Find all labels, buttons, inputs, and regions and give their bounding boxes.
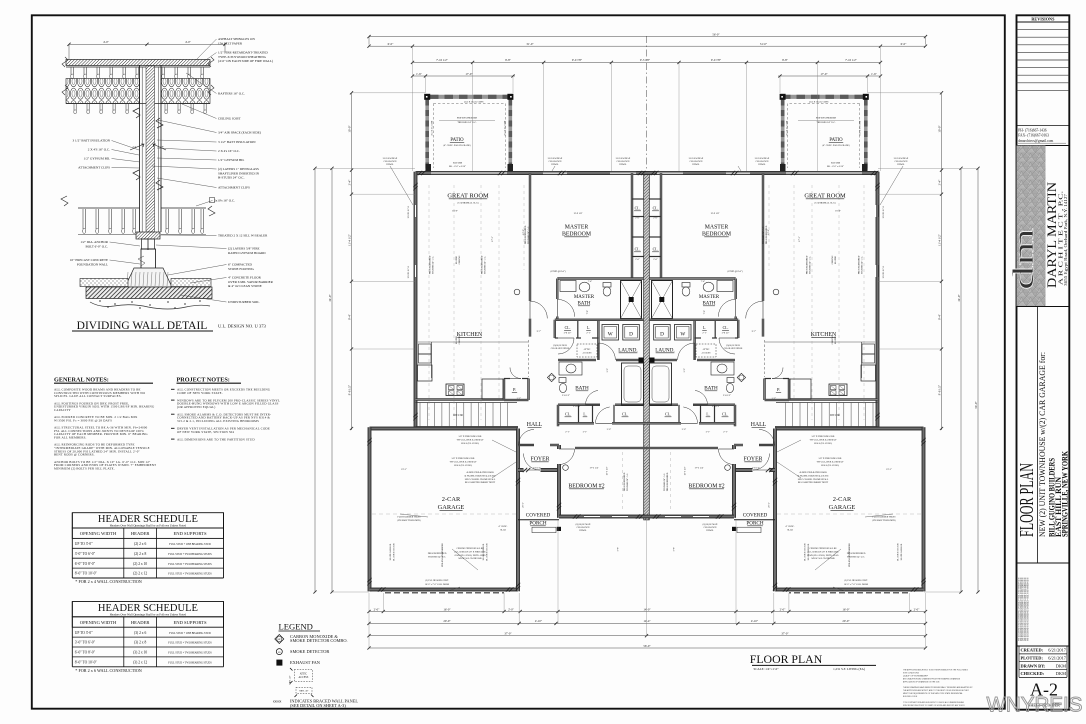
svg-text:W/3500 PSI. Fc = 3000 PSI @ 28: W/3500 PSI. Fc = 3000 PSI @ 28 DAYS (54, 418, 112, 422)
svg-text:(STUD @ 8'-0"): (STUD @ 8'-0") (727, 270, 742, 273)
svg-text:(4'-0" ON EACH SIDE OF FIRE WA: (4'-0" ON EACH SIDE OF FIRE WALL) (218, 59, 273, 63)
svg-text:2'-0": 2'-0" (374, 607, 381, 611)
svg-text:3/0 3/0 W/MAX: 3/0 3/0 W/MAX (894, 157, 909, 160)
svg-text:SLOPE GARAGE: SLOPE GARAGE (900, 543, 903, 560)
svg-text:END SUPPORTS: END SUPPORTS (173, 620, 206, 625)
svg-text:CL.: CL. (635, 248, 641, 252)
svg-text:CREATED:: CREATED: (1021, 648, 1044, 653)
svg-text:DARYL MARTIN: DARYL MARTIN (1044, 181, 1059, 288)
svg-text:(CATHEDRAL CLG): (CATHEDRAL CLG) (457, 202, 478, 205)
svg-text:PRE-ENGINEERED: PRE-ENGINEERED (766, 225, 768, 244)
svg-text:(1) LAYER OF 5/8" X FIRECODE: (1) LAYER OF 5/8" X FIRECODE (454, 550, 486, 553)
svg-text:CODE OF NEW YORK STATE.: CODE OF NEW YORK STATE. (177, 391, 223, 395)
svg-text:FAX- (716)667-0163: FAX- (716)667-0163 (1018, 134, 1049, 138)
svg-text:PRE-ENGINEERED: PRE-ENGINEERED (807, 255, 809, 274)
svg-text:TRUSSES 24" O.C.: TRUSSES 24" O.C. (810, 256, 812, 274)
svg-text:PLOTTED:: PLOTTED: (1021, 656, 1044, 661)
svg-text:HDWR.: HDWR. (551, 164, 559, 166)
svg-text:U.L. DESIGN NO. U 373: U.L. DESIGN NO. U 373 (218, 324, 267, 329)
svg-text:MC: MC (278, 639, 282, 641)
svg-text:FULL STUD + TWO BEARING STUDS: FULL STUD + TWO BEARING STUDS (168, 652, 212, 655)
svg-text:1'-6": 1'-6" (871, 72, 878, 76)
svg-text:L.: L. (587, 326, 590, 330)
svg-text:PRE-ENGINEERED: PRE-ENGINEERED (847, 553, 866, 555)
svg-text:UNDISTURBED SOIL: UNDISTURBED SOIL (228, 300, 259, 304)
svg-text:3/0 3/0 W/MAX: 3/0 3/0 W/MAX (383, 157, 398, 160)
svg-text:BOLT 6'-0" O.C.: BOLT 6'-0" O.C. (86, 244, 109, 248)
svg-text:2'-1": 2'-1" (702, 333, 706, 335)
svg-text:(3) 2 X 10s CONT: (3) 2 X 10s CONT (430, 120, 433, 136)
svg-text:12'-9 1/2": 12'-9 1/2" (607, 466, 609, 475)
svg-text:FLOOR TO DOOR: FLOOR TO DOOR (394, 543, 396, 561)
svg-text:FOUNDATION WALL: FOUNDATION WALL (77, 262, 108, 266)
svg-text:8'-0" TO 10'-0": 8'-0" TO 10'-0" (75, 572, 98, 576)
svg-text:D: D (629, 332, 633, 338)
svg-text:9'-8": 9'-8" (674, 547, 676, 551)
svg-text:ANY UNAUTHORIZED CHANGES FROM: ANY UNAUTHORIZED CHANGES FROM THE STAMPE… (903, 677, 961, 680)
svg-text:(3) 2 x 8: (3) 2 x 8 (134, 641, 146, 645)
svg-text:WRAP ALL CLGBEAMS: WRAP ALL CLGBEAMS (458, 557, 482, 560)
svg-text:BE GASKETED SMOKE TIGHT: BE GASKETED SMOKE TIGHT (465, 481, 496, 484)
svg-text:(2) 2 x 8: (2) 2 x 8 (134, 552, 146, 556)
svg-text:CLEARANCE: CLEARANCE (703, 526, 717, 529)
svg-text:MASTER: MASTER (699, 295, 720, 300)
svg-text:FLOOR TO DOOR: FLOOR TO DOOR (898, 543, 900, 561)
svg-text:WALL (UL # U305): WALL (UL # U305) (461, 442, 479, 445)
svg-text:TRUSSES 24" O.C.: TRUSSES 24" O.C. (433, 256, 435, 274)
svg-text:5/8" X FIRECODE GWB: 5/8" X FIRECODE GWB (459, 436, 482, 438)
svg-text:(CATHEDRAL CLG): (CATHEDRAL CLG) (814, 202, 835, 205)
svg-text:17'-0": 17'-0" (820, 72, 828, 76)
svg-text:19'-2": 19'-2" (886, 469, 892, 471)
svg-text:FLUSH GIRDER TRUSS: FLUSH GIRDER TRUSS (873, 517, 897, 519)
svg-text:FULL STUD + TWO BEARING STUDS: FULL STUD + TWO BEARING STUDS (168, 573, 212, 576)
svg-text:3/0 DBL HUNG: 3/0 DBL HUNG (408, 205, 410, 218)
svg-text:CL.: CL. (723, 326, 729, 330)
svg-text:DN 13R: DN 13R (830, 414, 840, 417)
svg-text:3 1/2" BATT INSULATION: 3 1/2" BATT INSULATION (73, 139, 111, 143)
svg-text:SLOPE GARAGE: SLOPE GARAGE (389, 543, 392, 560)
svg-text:GARAGE: GARAGE (438, 504, 465, 511)
svg-text:CLEARANCE: CLEARANCE (616, 160, 630, 163)
svg-text:SITE CONDITIONS: SITE CONDITIONS (903, 672, 920, 674)
svg-text:(4" CONC. PAD ON GRADE): (4" CONC. PAD ON GRADE) (822, 144, 849, 147)
svg-text:SPECIFICATIONS PRIOR TO START: SPECIFICATIONS PRIOR TO START OF WORK AN… (903, 704, 965, 707)
svg-text:OPENING WIDTH: OPENING WIDTH (80, 620, 117, 625)
svg-text:20'-0": 20'-0" (443, 619, 451, 623)
svg-text:CL.: CL. (635, 207, 641, 211)
svg-text:* FOR 2 x 4 WALL CONSTRUCTION: * FOR 2 x 4 WALL CONSTRUCTION (75, 579, 142, 584)
svg-text:REVISIONS: REVISIONS (1031, 16, 1055, 21)
svg-text:THESE DRAWINGS HAVE BEEN PROFE: THESE DRAWINGS HAVE BEEN PROFESSIONALLY … (903, 686, 973, 689)
svg-text:11'-4 1/2": 11'-4 1/2" (937, 233, 941, 246)
svg-text:TRUSSES 24" O.C.: TRUSSES 24" O.C. (847, 557, 865, 559)
svg-text:FLOOR TO DOOR: FLOOR TO DOOR (487, 543, 489, 561)
svg-text:9'-7": 9'-7" (752, 331, 756, 333)
svg-text:TYP (1) LAYER EA SIDE OF: TYP (1) LAYER EA SIDE OF (457, 438, 485, 441)
svg-text:17'-3": 17'-3" (799, 236, 801, 242)
svg-text:HDWR.: HDWR. (692, 164, 700, 166)
svg-text:5/8" X FIRECODE GWB: 5/8" X FIRECODE GWB (819, 458, 842, 460)
svg-text:2-CAR: 2-CAR (833, 496, 852, 503)
svg-text:ACCESS: ACCESS (701, 352, 711, 355)
svg-text:GREAT ROOM: GREAT ROOM (447, 193, 489, 200)
svg-text:(2) LVL HEADER CONT.: (2) LVL HEADER CONT. (844, 579, 868, 582)
svg-text:3'-0" TO 6'-0": 3'-0" TO 6'-0" (75, 641, 96, 645)
svg-text:(3) 2 X 10s (1) CONT.: (3) 2 X 10s (1) CONT. (464, 101, 484, 104)
svg-text:(2)(10) W/ MAX: (2)(10) W/ MAX (553, 344, 567, 347)
svg-text:16'-0" x 7'-0" GAR. DOOR: 16'-0" x 7'-0" GAR. DOOR (425, 583, 450, 586)
svg-text:BE GASKETED SMOKE TIGHT: BE GASKETED SMOKE TIGHT (798, 481, 829, 484)
svg-text:2'-8 1/2": 2'-8 1/2" (722, 333, 730, 335)
svg-text:W: W (680, 332, 685, 338)
svg-text:SPLICES. GLUE ALL CONTACT SURF: SPLICES. GLUE ALL CONTACT SURFACES. (54, 394, 122, 398)
svg-text:21'-2": 21'-2" (523, 502, 525, 508)
svg-text:1/2" GYPSUM BD.: 1/2" GYPSUM BD. (218, 158, 245, 162)
svg-text:SD: SD (278, 652, 281, 654)
svg-text:4'-10": 4'-10" (751, 619, 759, 623)
svg-text:SLOPED: SLOPED (456, 335, 458, 344)
svg-text:MASTER: MASTER (705, 225, 729, 231)
svg-text:EXHAUST FAN: EXHAUST FAN (290, 660, 321, 665)
svg-text:(2)(10) W/ MAX: (2)(10) W/ MAX (726, 344, 740, 347)
svg-text:FLUSH GIRDER TRUSS: FLUSH GIRDER TRUSS (398, 517, 422, 519)
svg-text:TRUSSES 24" O.C.: TRUSSES 24" O.C. (528, 226, 530, 244)
svg-text:2'-4 1/2": 2'-4 1/2" (573, 406, 581, 408)
svg-text:TYP (1) LAYER EA SIDE OF: TYP (1) LAYER EA SIDE OF (810, 438, 838, 441)
svg-text:CEILING: CEILING (832, 335, 834, 344)
svg-text:P.: P. (777, 387, 780, 392)
svg-text:GWB (UL # U305). NOTE: ALSO: GWB (UL # U305). NOTE: ALSO (808, 554, 839, 557)
svg-text:QUALITY OF WORKMANSHIP: QUALITY OF WORKMANSHIP (903, 674, 929, 677)
svg-text:9'-8": 9'-8" (505, 58, 512, 62)
svg-text:6'-0": 6'-0" (388, 42, 395, 46)
svg-text:RAFTERS 16" O.C.: RAFTERS 16" O.C. (218, 92, 245, 96)
svg-text:OPENING WIDTH: OPENING WIDTH (80, 531, 117, 536)
svg-text:WALL (UL # U305): WALL (UL # U305) (821, 464, 839, 467)
svg-text:Headers Over Wall Openings Sha: Headers Over Wall Openings Shall be as F… (110, 524, 187, 528)
svg-text:34'-0": 34'-0" (957, 294, 961, 302)
svg-text:& FRAME. DOOR SHALL HAVE: & FRAME. DOOR SHALL HAVE (465, 474, 497, 477)
svg-text:GARAGE: GARAGE (829, 504, 856, 511)
svg-text:9'-4": 9'-4" (937, 313, 941, 320)
svg-text:12'-9 1/2": 12'-9 1/2" (685, 466, 687, 475)
svg-text:CL.: CL. (622, 413, 628, 417)
svg-text:SLAB: SLAB (500, 529, 506, 532)
svg-text:WALL (UL # U305): WALL (UL # U305) (454, 464, 472, 467)
svg-text:SELF-CLOSER. FRAME SHALL: SELF-CLOSER. FRAME SHALL (465, 478, 496, 481)
svg-text:GWB (UL # U305). NOTE: ALSO: GWB (UL # U305). NOTE: ALSO (455, 554, 486, 557)
svg-text:END SUPPORTS: END SUPPORTS (173, 531, 206, 536)
svg-text:(3) 2 x 12: (3) 2 x 12 (133, 661, 147, 665)
svg-text:SLAB: SLAB (787, 529, 793, 532)
svg-text:9'-8": 9'-8" (782, 58, 789, 62)
svg-text:PRE-ENGINEERED: PRE-ENGINEERED (667, 472, 669, 491)
svg-text:3'-4": 3'-4" (937, 179, 941, 186)
svg-text:SGD 6068: SGD 6068 (453, 162, 463, 164)
svg-text:L.: L. (583, 413, 586, 417)
svg-text:ALL DIMENSIONS ARE TO THE PART: ALL DIMENSIONS ARE TO THE PARTITION STUD (177, 437, 255, 441)
svg-text:UP TO 3'-0": UP TO 3'-0" (75, 631, 93, 635)
svg-text:3/0 3/0 W/MAX: 3/0 3/0 W/MAX (548, 157, 563, 160)
svg-text:TRUSSES 24" O.C.: TRUSSES 24" O.C. (485, 256, 487, 274)
svg-text:NEW (2) UNIT TOWNHOUSE w/(2) C: NEW (2) UNIT TOWNHOUSE w/(2) CAR GARAGE … (1037, 352, 1047, 537)
svg-text:(1) LAYER OF 5/8" X FIRECODE: (1) LAYER OF 5/8" X FIRECODE (807, 550, 839, 553)
svg-text:31'-0": 31'-0" (760, 42, 768, 46)
svg-text:4'-0": 4'-0" (103, 40, 110, 44)
svg-text:FULL STUD + ONE BEARING STUD: FULL STUD + ONE BEARING STUD (169, 543, 211, 546)
svg-text:37'-0": 37'-0" (504, 632, 512, 636)
svg-text:dm: dm (1007, 228, 1040, 290)
svg-text:RATED GYPSUM BOARD: RATED GYPSUM BOARD (228, 251, 266, 255)
svg-text:7'-10 1/2": 7'-10 1/2" (845, 58, 858, 62)
svg-text:(2) 2 x 6: (2) 2 x 6 (134, 542, 146, 546)
svg-text:MASTER: MASTER (574, 295, 595, 300)
svg-text:HDWR.: HDWR. (579, 530, 587, 532)
svg-text:TYP (1) LAYER EA SIDE OF: TYP (1) LAYER EA SIDE OF (817, 460, 845, 463)
svg-text:CEILING: CEILING (459, 335, 461, 344)
svg-text:16'-8": 16'-8" (452, 211, 458, 213)
svg-text:FLOOR TO DOOR: FLOOR TO DOOR (805, 543, 807, 561)
svg-text:3 1/2" BATT INSULATION: 3 1/2" BATT INSULATION (218, 140, 256, 144)
svg-text:2'-0": 2'-0" (635, 218, 639, 220)
svg-text:2'-4 1/2": 2'-4 1/2" (712, 406, 720, 408)
svg-text:FULL STUD + TWO BEARING STUDS: FULL STUD + TWO BEARING STUDS (168, 563, 212, 566)
svg-text:FULL STUD + TWO BEARING STUDS: FULL STUD + TWO BEARING STUDS (168, 553, 212, 556)
svg-text:UP TO 3'-0": UP TO 3'-0" (75, 542, 93, 546)
svg-text:CLEARANCE: CLEARANCE (548, 160, 562, 163)
svg-text:21'-2": 21'-2" (769, 502, 771, 508)
svg-text:& 4" #2 CLEAN STONE: & 4" #2 CLEAN STONE (228, 284, 262, 288)
svg-text:CEILING FINISH SHALL BE: CEILING FINISH SHALL BE (456, 547, 484, 550)
svg-text:(3) 2 X 10s CONT: (3) 2 X 10s CONT (785, 120, 788, 136)
svg-text:9'-0": 9'-0" (607, 368, 609, 372)
svg-text:MEET THE REQUIREMENTS OF THE N: MEET THE REQUIREMENTS OF THE NEW YORK ST… (903, 692, 963, 695)
svg-text:2 X 4'S 16" O.C.: 2 X 4'S 16" O.C. (88, 148, 110, 152)
svg-text:THE APPROVING ARCHITECT IS NOT: THE APPROVING ARCHITECT IS NOT RESPONSIB… (903, 669, 969, 672)
svg-text:9'-0 7/8": 9'-0 7/8" (711, 58, 722, 62)
svg-text:ATTIC: ATTIC (584, 348, 591, 351)
svg-text:HDWR.: HDWR. (758, 164, 766, 166)
svg-text:3/4" AIR SPACE (EACH SIDE): 3/4" AIR SPACE (EACH SIDE) (218, 131, 261, 135)
svg-text:45 MIN. FIRE-RATED DOOR: 45 MIN. FIRE-RATED DOOR (799, 471, 827, 474)
svg-text:(3) 2 x 6: (3) 2 x 6 (134, 631, 146, 635)
svg-text:SELF-CLOSER. FRAME SHALL: SELF-CLOSER. FRAME SHALL (798, 478, 829, 481)
svg-text:7'-4": 7'-4" (701, 281, 705, 283)
svg-text:ATTACHMENT CLIPS: ATTACHMENT CLIPS (218, 186, 250, 190)
svg-text:9'-4": 9'-4" (347, 313, 351, 320)
svg-text:D: D (660, 332, 664, 338)
svg-text:THE APPROVING ARCHITECT, AND T: THE APPROVING ARCHITECT, AND TO THE BEST… (903, 689, 970, 692)
svg-text:4" CONC.: 4" CONC. (785, 526, 795, 528)
svg-text:HEADER: HEADER (131, 620, 151, 625)
svg-text:CL.: CL. (565, 326, 571, 330)
svg-text:SPRINGVILLE, NEW YORK: SPRINGVILLE, NEW YORK (1060, 451, 1070, 537)
svg-text:TRUSSES 24" O.C.: TRUSSES 24" O.C. (816, 121, 836, 124)
svg-text:1/2" GYPSUM BD.: 1/2" GYPSUM BD. (84, 157, 111, 161)
svg-text:PRE-ENGINEERED: PRE-ENGINEERED (525, 225, 527, 244)
svg-text:2'-0": 2'-0" (635, 259, 639, 261)
svg-text:H-STUDS 24" O.C.: H-STUDS 24" O.C. (218, 176, 245, 180)
svg-text:dmarchtecs@gmail.com: dmarchtecs@gmail.com (1018, 139, 1053, 143)
svg-text:ACCESS: ACCESS (298, 676, 308, 679)
svg-text:2'-8 1/2": 2'-8 1/2" (723, 395, 731, 397)
svg-text:34'-0": 34'-0" (328, 294, 332, 302)
svg-text:2'-0": 2'-0" (914, 607, 921, 611)
svg-text:(2) 2 x 10: (2) 2 x 10 (133, 562, 147, 566)
svg-text:CL.: CL. (653, 207, 659, 211)
svg-text:31'-0": 31'-0" (526, 42, 534, 46)
svg-text:2 X 4's 16" O.C.: 2 X 4's 16" O.C. (218, 149, 240, 153)
svg-text:* FOR 2 x 6 WALL CONSTRUCTION: * FOR 2 x 6 WALL CONSTRUCTION (75, 668, 142, 673)
svg-text:9'-0": 9'-0" (684, 368, 686, 372)
svg-text:6/21/2017: 6/21/2017 (1048, 648, 1067, 653)
svg-text:2'-8 1/2": 2'-8 1/2" (562, 395, 570, 397)
svg-text:CL.: CL. (722, 413, 728, 417)
svg-text:PROJECT NOTES:: PROJECT NOTES: (177, 377, 230, 384)
svg-text:(3) 2 x 10: (3) 2 x 10 (133, 651, 147, 655)
svg-text:(3) 2 X 10s CONT: (3) 2 X 10s CONT (859, 120, 862, 136)
svg-text:GREAT ROOM: GREAT ROOM (804, 193, 846, 200)
svg-text:7'-8": 7'-8" (587, 310, 589, 314)
svg-text:20'-0": 20'-0" (842, 619, 850, 623)
svg-text:12'-9 1/8": 12'-9 1/8" (710, 213, 719, 215)
svg-text:2'-0": 2'-0" (653, 218, 657, 220)
svg-text:3/0 DBL HUNG: 3/0 DBL HUNG (883, 265, 885, 278)
svg-text:DIVIDING WALL DETAIL: DIVIDING WALL DETAIL (77, 320, 208, 332)
svg-text:1'-6": 1'-6" (416, 72, 423, 76)
svg-text:9'-7": 9'-7" (537, 331, 541, 333)
svg-text:56'-0": 56'-0" (712, 32, 720, 36)
svg-text:4" CONC.: 4" CONC. (498, 526, 508, 528)
svg-text:7'-4": 7'-4" (588, 281, 592, 283)
svg-text:6'-0": 6'-0" (901, 42, 908, 46)
svg-text:CLEARANCE: CLEARANCE (689, 160, 703, 163)
svg-text:5'-0 1/2": 5'-0 1/2" (533, 468, 541, 470)
svg-text:5'-2": 5'-2" (517, 398, 521, 400)
svg-text:(STUD @ 8'-0"): (STUD @ 8'-0") (550, 270, 565, 273)
svg-text:9'-0 7/8": 9'-0 7/8" (572, 58, 583, 62)
svg-text:STONE FOOTING: STONE FOOTING (228, 267, 254, 271)
svg-text:FLOOR PLAN: FLOOR PLAN (1016, 463, 1038, 537)
svg-text:14'-0": 14'-0" (643, 607, 651, 611)
svg-text:RO = 6'-0" x 6'-10": RO = 6'-0" x 6'-10" (449, 166, 466, 168)
svg-text:5/8" X FIRECODE GWB: 5/8" X FIRECODE GWB (452, 458, 475, 460)
svg-text:4'-10": 4'-10" (535, 619, 543, 623)
svg-text:PRE-ENGINEERED: PRE-ENGINEERED (624, 472, 626, 491)
svg-text:6'-0" TO 8'-0": 6'-0" TO 8'-0" (75, 562, 96, 566)
svg-text:FLOOR PLAN: FLOOR PLAN (750, 652, 823, 666)
svg-text:PRE-ENGINEERED: PRE-ENGINEERED (428, 553, 447, 555)
svg-text:CEILING: CEILING (459, 255, 461, 264)
svg-text:4'-0": 4'-0" (185, 40, 192, 44)
svg-text:Headers Over Wall Openings Sha: Headers Over Wall Openings Shall be as F… (110, 612, 187, 616)
svg-text:2'-1": 2'-1" (586, 333, 590, 335)
svg-text:(OR APPROVED EQUAL): (OR APPROVED EQUAL) (177, 405, 216, 409)
svg-text:17'-2 1/4": 17'-2 1/4" (694, 468, 703, 470)
svg-text:9'-8 1/2": 9'-8 1/2" (347, 384, 351, 395)
svg-text:6'-0" TO 8'-0": 6'-0" TO 8'-0" (75, 651, 96, 655)
svg-text:16'-0": 16'-0" (443, 607, 451, 611)
svg-text:THE DOCUMENT IS NOT CONSIDERED: THE DOCUMENT IS NOT CONSIDERED ORIGINAL … (1027, 577, 1030, 641)
svg-text:SMOKE DETECTOR COMBO.: SMOKE DETECTOR COMBO. (290, 638, 348, 643)
svg-text:TRUSSES 24" O.C.: TRUSSES 24" O.C. (627, 473, 629, 491)
svg-text:CL.: CL. (653, 248, 659, 252)
svg-text:2'-1": 2'-1" (565, 432, 569, 434)
svg-text:(BY ROOF TRUSS MFR): (BY ROOF TRUSS MFR) (397, 519, 421, 522)
svg-text:CLEARANCE HDWR: CLEARANCE HDWR (551, 347, 570, 350)
svg-text:WNYREIS: WNYREIS (987, 693, 1083, 717)
svg-text:5/8" X FIRECODE GWB: 5/8" X FIRECODE GWB (812, 436, 835, 438)
svg-text:(2)(10) W/ MAX: (2)(10) W/ MAX (575, 523, 590, 526)
svg-text:CLEARANCE: CLEARANCE (755, 160, 769, 163)
svg-text:CAPACITY: CAPACITY (54, 408, 71, 412)
svg-text:FOR ALL MEMBERS.: FOR ALL MEMBERS. (54, 436, 87, 440)
svg-text:9'-8": 9'-8" (618, 547, 620, 551)
svg-text:56'-0": 56'-0" (643, 644, 651, 648)
svg-text:3'-0" TO 6'-0": 3'-0" TO 6'-0" (75, 552, 96, 556)
svg-text:13'-8": 13'-8" (768, 229, 770, 235)
svg-text:56'-0": 56'-0" (974, 401, 978, 409)
svg-text:PH- (716)667-1436: PH- (716)667-1436 (1018, 129, 1046, 133)
svg-text:MASTER: MASTER (565, 225, 589, 231)
svg-text:GENERAL NOTES:: GENERAL NOTES: (54, 377, 109, 384)
svg-text:W: W (608, 332, 613, 338)
svg-text:2'-8 1/2": 2'-8 1/2" (564, 333, 572, 335)
svg-text:CLEARANCE: CLEARANCE (894, 160, 908, 163)
svg-text:16'-0" x 7'-0" GAR. DOOR: 16'-0" x 7'-0" GAR. DOOR (844, 583, 869, 586)
svg-text:CL.: CL. (665, 413, 671, 417)
svg-text:FULL STUD + TWO BEARING STUDS: FULL STUD + TWO BEARING STUDS (168, 662, 212, 665)
svg-text:17'-3": 17'-3" (492, 236, 494, 242)
svg-text:ATTACHMENT CLIPS: ATTACHMENT CLIPS (78, 166, 110, 170)
svg-text:2'-1": 2'-1" (583, 432, 587, 434)
svg-text:10'-0": 10'-0" (937, 125, 941, 133)
svg-text:MINIMUM (2) BOLTS PER SILL PLA: MINIMUM (2) BOLTS PER SILL PLATE. (54, 466, 115, 470)
svg-text:7'-10 1/2": 7'-10 1/2" (436, 58, 449, 62)
svg-text:(4" CONC. PAD ON GRADE): (4" CONC. PAD ON GRADE) (443, 144, 470, 147)
svg-text:(2) 2 x 12: (2) 2 x 12 (133, 572, 147, 576)
svg-text:HDWR.: HDWR. (386, 164, 394, 166)
svg-text:xxxxx: xxxxx (273, 700, 282, 704)
svg-text:CEILING FINISH SHALL BE: CEILING FINISH SHALL BE (809, 547, 837, 550)
svg-text:2'-0": 2'-0" (653, 259, 657, 261)
svg-text:37'-0": 37'-0" (781, 632, 789, 636)
svg-text:(BY ROOF TRUSS MFR): (BY ROOF TRUSS MFR) (872, 519, 896, 522)
svg-text:SGD 6068: SGD 6068 (831, 162, 841, 164)
svg-text:PRE-ENGINEERED: PRE-ENGINEERED (859, 255, 861, 274)
svg-text:3/0 3/0 W/MAX: 3/0 3/0 W/MAX (689, 157, 704, 160)
svg-text:45 MIN. FIRE-RATED DOOR: 45 MIN. FIRE-RATED DOOR (466, 471, 494, 474)
svg-text:19'-2": 19'-2" (401, 469, 407, 471)
svg-text:P.: P. (513, 387, 516, 392)
svg-text:3/0 DBL HUNG: 3/0 DBL HUNG (408, 265, 410, 278)
svg-text:L.: L. (703, 326, 706, 330)
svg-text:3'-6": 3'-6" (607, 429, 611, 431)
svg-text:CLEARANCE: CLEARANCE (383, 160, 397, 163)
svg-text:COVERED: COVERED (526, 513, 551, 519)
svg-text:(3) 2 X 10s CONT: (3) 2 X 10s CONT (504, 120, 507, 136)
svg-text:10'-0": 10'-0" (347, 125, 351, 133)
svg-text:2'-1": 2'-1" (723, 432, 727, 434)
svg-text:HDWR.: HDWR. (619, 164, 627, 166)
svg-text:SLOPED: SLOPED (835, 255, 837, 264)
svg-text:DRAWN BY:: DRAWN BY: (1021, 663, 1046, 668)
svg-text:FULL STUD + ONE BEARING STUD: FULL STUD + ONE BEARING STUD (169, 632, 211, 635)
svg-text:SLOPED: SLOPED (456, 255, 458, 264)
svg-text:LEGEND: LEGEND (279, 622, 313, 632)
svg-text:FULL STUD + TWO BEARING STUDS: FULL STUD + TWO BEARING STUDS (168, 642, 212, 645)
